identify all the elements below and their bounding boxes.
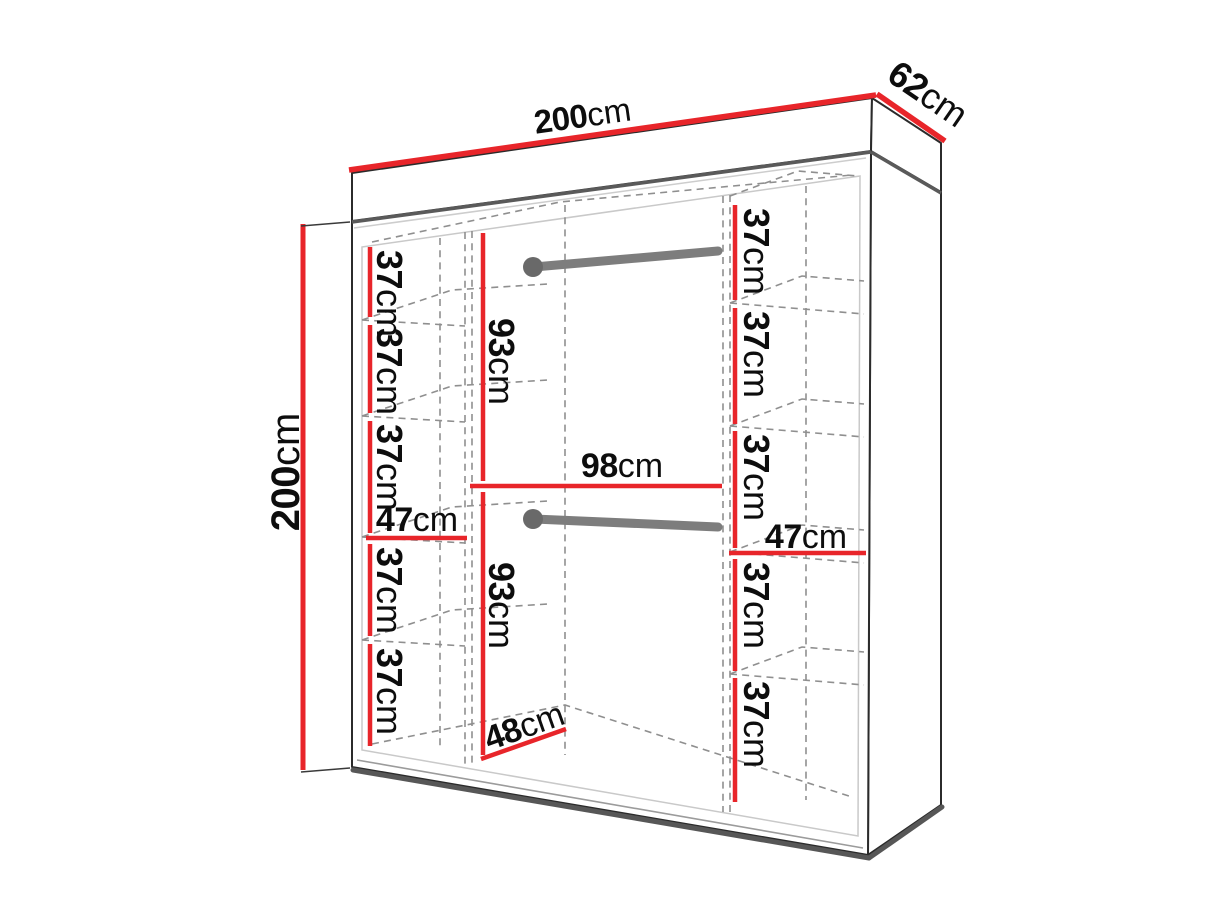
dim-label-middle-upper-height: 93cm [481, 318, 522, 405]
dim-label-right-shelf-4: 37cm [736, 562, 777, 649]
dim-label-left-shelf-3: 37cm [369, 424, 410, 511]
hanging-rail-upper-endcap [523, 257, 543, 277]
dim-label-right-shelf-1: 37cm [736, 208, 777, 295]
dim-label-right-shelf-3: 37cm [736, 434, 777, 521]
cabinet-right-side-panel [868, 151, 941, 855]
diagram-canvas: 200cm 62cm 200cm 37cm 37cm 37cm 47cm 37c… [0, 0, 1214, 911]
dim-label-left-shelf-1: 37cm [369, 250, 410, 337]
dim-extension-height-top [301, 222, 350, 226]
dim-label-middle-lower-height: 93cm [481, 562, 522, 649]
wardrobe-dimension-diagram: 200cm 62cm 200cm 37cm 37cm 37cm 47cm 37c… [0, 0, 1214, 911]
hanging-rail-lower-endcap [523, 509, 543, 529]
dim-label-right-shelf-5: 37cm [736, 681, 777, 768]
dim-label-overall-height: 200cm [264, 413, 308, 532]
dim-label-left-column-width: 47cm [376, 501, 458, 539]
dim-label-right-column-width: 47cm [765, 518, 847, 556]
dim-label-left-shelf-2: 37cm [369, 328, 410, 415]
dim-label-left-shelf-5: 37cm [369, 648, 410, 735]
dim-label-left-shelf-4: 37cm [369, 547, 410, 634]
dim-label-right-shelf-2: 37cm [736, 311, 777, 398]
dim-extension-height-bottom [301, 768, 350, 772]
dim-label-middle-width: 98cm [581, 447, 663, 485]
